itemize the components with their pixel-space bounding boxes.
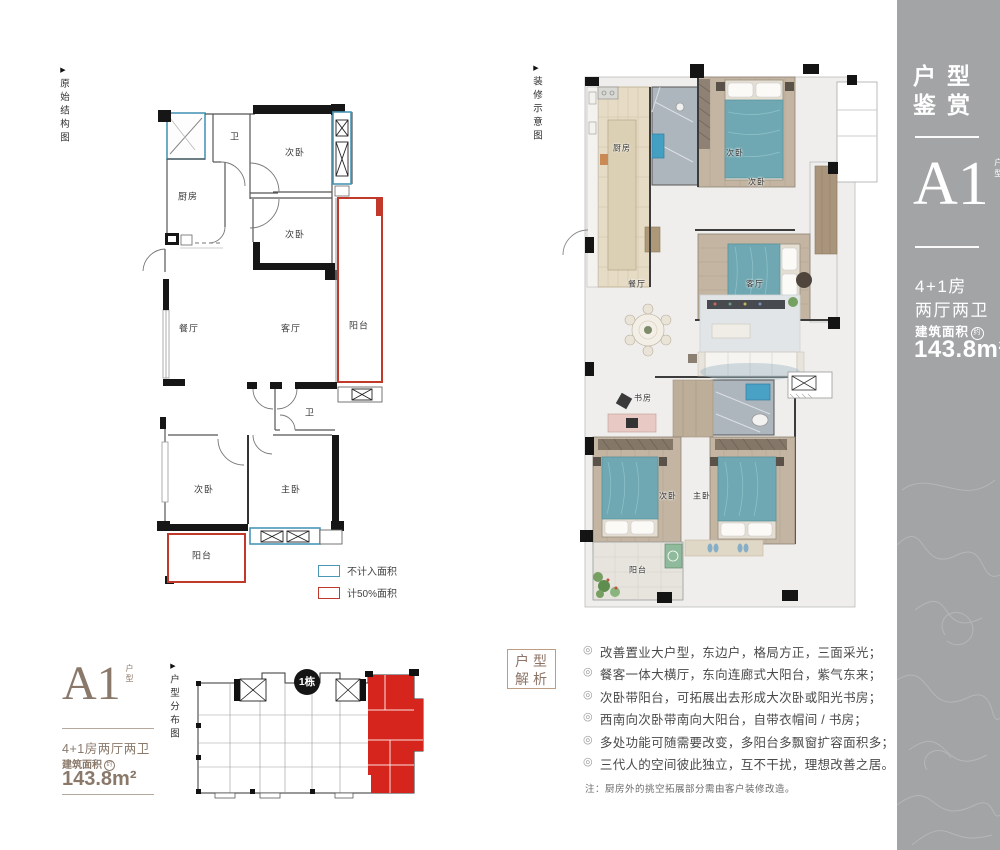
divider (915, 136, 979, 138)
bullet-circle-icon: ◎ (583, 733, 593, 746)
room-label: 厨房 (613, 143, 631, 154)
room-label: 阳台 (629, 565, 647, 576)
bullet-circle-icon: ◎ (583, 710, 593, 723)
room-label: 次卧 (194, 483, 214, 496)
decorated-plan: 厨房 次卧 次卧 餐厅 客厅 书房 次卧 主卧 阳台 (560, 62, 890, 647)
room-label: 餐厅 (628, 279, 646, 290)
legend-label: 不计入面积 (347, 563, 397, 578)
unit-code: A1 (62, 658, 121, 710)
building-badge: 1栋 (294, 669, 320, 695)
room-label: 阳台 (192, 549, 212, 562)
room-label: 阳台 (349, 319, 369, 332)
original-plan-drawing (135, 92, 435, 612)
bullet-circle-icon: ◎ (583, 755, 593, 768)
room-label: 次卧 (285, 146, 305, 159)
unit-spec-line: 4+1房 (915, 272, 967, 297)
sidebar: 户型 鉴赏 A1 户型 4+1房 两厅两卫 建筑面积约 143.8m² (897, 0, 1000, 850)
analysis-bullet-list: ◎改善置业大户型，东边户，格局方正，三面采光； ◎餐客一体大横厅，东向连廊式大阳… (583, 642, 883, 776)
divider (62, 794, 154, 795)
room-label: 卫 (305, 406, 315, 419)
area-value: 143.8m² (914, 336, 1000, 364)
unit-spec: 4+1房两厅两卫 (62, 738, 150, 757)
bullet-circle-icon: ◎ (583, 643, 593, 656)
room-label: 餐厅 (179, 322, 199, 335)
analysis-note: 注：厨房外的挑空拓展部分需由客户装修改造。 (585, 781, 795, 795)
unit-tag: 户型 (124, 664, 135, 684)
caption-decorated-plan: ▶ 装修示意图 (529, 64, 543, 144)
triangle-marker-icon: ▶ (170, 662, 175, 671)
room-label: 次卧 (726, 148, 744, 159)
unit-tag: 户型 (993, 158, 1000, 216)
caption-distribution: ▶ 户型分布图 (166, 662, 180, 742)
analysis-bullet: ◎多处功能可随需要改变，多阳台多飘窗扩容面积多； (583, 732, 883, 754)
analysis-bullet: ◎次卧带阳台，可拓展出去形成大次卧或阳光书房； (583, 687, 883, 709)
legend-red-swatch (318, 587, 340, 599)
divider (62, 728, 154, 729)
decorated-plan-drawing (560, 62, 890, 647)
room-label: 厨房 (178, 190, 198, 203)
analysis-bullet: ◎三代人的空间彼此独立，互不干扰，理想改善之居。 (583, 754, 883, 776)
room-label: 主卧 (281, 483, 301, 496)
triangle-marker-icon: ▶ (60, 66, 65, 75)
caption-text: 装修示意图 (529, 76, 543, 144)
room-label: 主卧 (693, 491, 711, 502)
caption-text: 户型分布图 (166, 674, 180, 742)
legend-not-counted: 不计入面积 (318, 563, 397, 578)
triangle-marker-icon: ▶ (533, 64, 538, 73)
bullet-circle-icon: ◎ (583, 688, 593, 701)
room-label: 次卧 (285, 228, 305, 241)
unit-code-block: A1 户型 (913, 152, 1000, 216)
room-label: 书房 (634, 393, 652, 404)
analysis-title-box: 户型 解析 (507, 649, 556, 689)
room-label: 卫 (230, 130, 240, 143)
analysis-bullet: ◎西南向次卧带南向大阳台，自带衣帽间 / 书房； (583, 709, 883, 731)
room-label: 次卧 (659, 491, 677, 502)
caption-text: 原始结构图 (56, 78, 70, 146)
area-value: 143.8m² (62, 768, 137, 791)
page-title: 户型 鉴赏 (913, 62, 981, 120)
analysis-title-line: 解析 (515, 670, 555, 688)
divider (915, 246, 979, 248)
unit-code: A1 (913, 152, 989, 216)
analysis-bullet: ◎餐客一体大横厅，东向连廊式大阳台，紫气东来； (583, 664, 883, 686)
unit-spec-line: 两厅两卫 (915, 296, 989, 321)
legend-half-area: 计50%面积 (318, 585, 397, 600)
room-label: 客厅 (281, 322, 301, 335)
bullet-circle-icon: ◎ (583, 665, 593, 678)
room-label: 次卧 (748, 177, 766, 188)
room-label: 客厅 (746, 279, 764, 290)
dragon-pattern-decoration (897, 450, 1000, 850)
analysis-title-line: 户型 (515, 652, 555, 670)
analysis-bullet: ◎改善置业大户型，东边户，格局方正，三面采光； (583, 642, 883, 664)
caption-original-plan: ▶ 原始结构图 (56, 66, 70, 146)
original-structure-plan: 厨房 卫 次卧 次卧 餐厅 客厅 阳台 卫 次卧 主卧 阳台 不计入面积 计50… (135, 92, 435, 612)
floorplan-poster: ▶ 原始结构图 (0, 0, 1000, 850)
legend-label: 计50%面积 (347, 585, 397, 600)
legend-blue-swatch (318, 565, 340, 577)
